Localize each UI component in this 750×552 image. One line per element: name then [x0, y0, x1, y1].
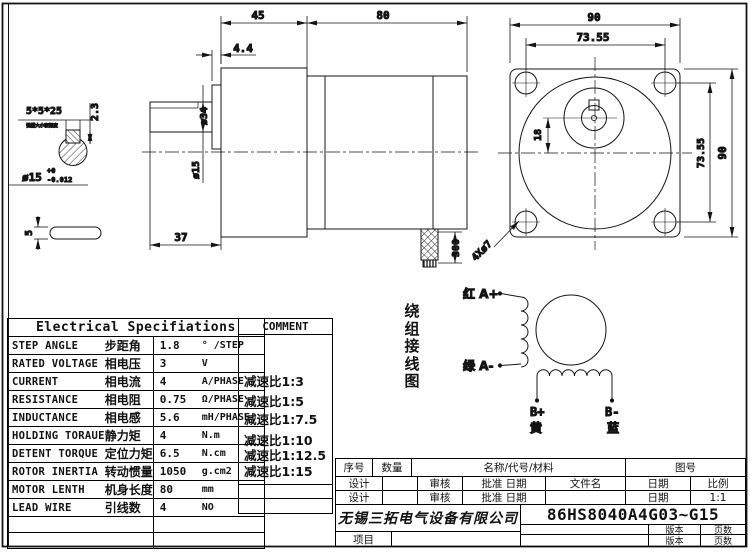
spec-table-title: Electrical Specifiations	[8, 319, 265, 337]
spec-row-inductance: INDUCTANCE 相电感 5.6 mH/PHASE	[8, 409, 265, 427]
tb-empty-cell	[392, 532, 521, 546]
spec-en: STEP ANGLE	[8, 337, 105, 355]
spec-value: 0.75	[153, 391, 198, 409]
dim-shaft-diameter: ø15	[191, 161, 202, 179]
dim-motor-length: 80	[376, 9, 389, 22]
tb-version-label: 版本	[649, 535, 701, 546]
spec-value: 1050	[153, 463, 198, 481]
spec-cn: 相电阻	[105, 391, 154, 409]
dim-shaft-offset: 18	[533, 129, 544, 141]
tb-name-code-material-label: 名称/代号/材料	[412, 459, 626, 477]
gear-ratio-item: 减速比1:15	[244, 461, 313, 480]
spec-cn: 机身长度	[105, 481, 154, 499]
shaft-tolerance-upper: +0	[47, 167, 55, 175]
spec-en: RATED VOLTAGE	[8, 355, 105, 373]
phase-b-coil	[537, 370, 612, 376]
dim-flange-width: 90	[587, 11, 600, 24]
spec-row-rated-voltage: RATED VOLTAGE 相电压 3 V	[8, 355, 265, 373]
spec-cn: 静力矩	[105, 427, 154, 445]
tb-company-name: 无锡三拓电气设备有限公司	[336, 505, 521, 532]
front-view: 90 73.55 73.55 90 18 4Xø7	[470, 11, 738, 264]
tb-scale-label: 比例	[691, 477, 745, 491]
dim-mounting-holes: 4Xø7	[470, 239, 495, 264]
tb-scale-value: 1:1	[691, 491, 745, 505]
key-height-label: 5	[24, 230, 35, 236]
spec-row-lead-wire: LEAD WIRE 引线数 4 NO	[8, 499, 265, 517]
cable	[421, 229, 438, 267]
shaft-tolerance-lower: -0.012	[47, 176, 72, 184]
bolt-holes	[512, 69, 679, 236]
spec-row-motor-length: MOTOR LENTH 机身长度 80 mm	[8, 481, 265, 499]
shaft-tolerance-base: ø15	[22, 171, 42, 184]
comment-column: COMMENT 减速比1:3 减速比1:5 减速比1:7.5 减速比1:10 减…	[238, 318, 333, 514]
spec-en: HOLDING TORAUE	[8, 427, 105, 445]
spec-value: 5.6	[153, 409, 198, 427]
side-view: 45 80 4.4 ø34 ø15 37 300	[142, 9, 478, 267]
spec-row-step-angle: STEP ANGLE 步距角 1.8 ° /STEP	[8, 337, 265, 355]
spec-cn: 引线数	[105, 499, 154, 517]
spec-cn: 相电感	[105, 409, 154, 427]
dim-shaft-length: 37	[174, 231, 187, 244]
spec-value: 4	[153, 373, 198, 391]
spec-en: LEAD WIRE	[8, 499, 105, 517]
dim-boss-thickness: 4.4	[233, 42, 253, 55]
spec-cn: 相电压	[105, 355, 154, 373]
phase-a-coil	[521, 297, 528, 367]
lead-b-plus-label: B+	[530, 405, 544, 419]
tb-seq-label: 序号	[336, 459, 373, 477]
gear-ratio-item: 减速比1:5	[244, 391, 304, 410]
shaft-section-detail: 5*5*25 键槽大小和深度 2.3 ø15 +0 -0.012	[8, 103, 101, 185]
tb-version-label: 版本	[649, 525, 701, 535]
spec-en: CURRENT	[8, 373, 105, 391]
tb-date-label: 日期	[626, 491, 691, 505]
tb-pages-label: 页数	[701, 535, 745, 546]
spec-empty-row	[8, 533, 265, 549]
wiring-diagram: 红 A+ 绿 A- B+ 黄 B- 蓝	[463, 286, 619, 435]
spec-row-holding-torque: HOLDING TORAUE 静力矩 4 N.m	[8, 427, 265, 445]
spec-row-current: CURRENT 相电流 4 A/PHASE	[8, 373, 265, 391]
tb-approve-date-label: 批准 日期	[463, 477, 546, 491]
tb-review-label: 审核	[418, 491, 463, 505]
keyway-note: 键槽大小和深度	[26, 122, 58, 129]
spec-value: 4	[153, 427, 198, 445]
spec-en: MOTOR LENTH	[8, 481, 105, 499]
dim-boss-diameter: ø34	[199, 107, 210, 125]
spec-cn: 定位力矩	[105, 445, 154, 463]
tb-empty-cell	[383, 491, 418, 505]
dim-hole-spacing-h: 73.55	[576, 31, 609, 44]
comment-header: COMMENT	[239, 319, 332, 335]
dim-hole-spacing-v: 73.55	[696, 138, 707, 168]
engineering-drawing-sheet: 45 80 4.4 ø34 ø15 37 300 5*5*25 键槽大小和深度 …	[0, 0, 750, 552]
spec-en: DETENT TORQUE	[8, 445, 105, 463]
keyway-spec-label: 5*5*25	[26, 106, 62, 117]
electrical-spec-table: Electrical Specifiations STEP ANGLE 步距角 …	[7, 318, 265, 549]
tb-drawing-no-label: 图号	[626, 459, 745, 477]
spec-row-resistance: RESISTANCE 相电阻 0.75 Ω/PHASE	[8, 391, 265, 409]
lead-a-plus-label: 红 A+	[463, 286, 499, 301]
spec-value: 3	[153, 355, 198, 373]
tb-design-label: 设计	[336, 491, 383, 505]
spec-value: 1.8	[153, 337, 198, 355]
tb-date-label: 日期	[626, 477, 691, 491]
title-block: 序号 数量 名称/代号/材料 图号 设计 审核 批准 日期 文件名 日期 比例 …	[335, 458, 746, 547]
dim-gearbox-length: 45	[251, 9, 264, 22]
tb-empty-cell	[383, 477, 418, 491]
lead-b-minus-color: 蓝	[607, 420, 619, 435]
spec-empty-row	[8, 517, 265, 533]
spec-value: 4	[153, 499, 198, 517]
spec-value: 6.5	[153, 445, 198, 463]
spec-en: ROTOR INERTIA	[8, 463, 105, 481]
spec-cn: 转动惯量	[105, 463, 154, 481]
lead-b-minus-label: B-	[605, 405, 619, 419]
dim-flange-height: 90	[716, 146, 729, 159]
spec-cn: 步距角	[105, 337, 154, 355]
tb-pages-label: 页数	[701, 525, 745, 535]
tb-empty-cell	[521, 535, 649, 546]
comment-grid-line	[239, 498, 332, 499]
tb-qty-label: 数量	[373, 459, 412, 477]
tb-file-name-label: 文件名	[546, 477, 626, 491]
tb-part-number: 86HS8040A4G03~G15	[521, 505, 745, 525]
spec-en: INDUCTANCE	[8, 409, 105, 427]
keyway-depth-label: 2.3	[90, 103, 101, 121]
comment-grid-line	[239, 484, 332, 485]
tb-approve-date-label: 批准 日期	[463, 491, 546, 505]
wiring-diagram-title: 绕组接线图	[403, 303, 421, 391]
spec-value: 80	[153, 481, 198, 499]
key-side-view: 5	[24, 216, 101, 250]
spec-row-rotor-inertia: ROTOR INERTIA 转动惯量 1050 g.cm2	[8, 463, 265, 481]
side-view-dimensions	[150, 16, 467, 263]
lead-a-minus-label: 绿 A-	[463, 358, 493, 373]
spec-en: RESISTANCE	[8, 391, 105, 409]
gear-ratio-item: 减速比1:3	[244, 371, 304, 390]
spec-row-detent-torque: DETENT TORQUE 定位力矩 6.5 N.cm	[8, 445, 265, 463]
spec-header-row: Electrical Specifiations	[8, 319, 265, 337]
tb-design-label: 设计	[336, 477, 383, 491]
lead-b-plus-color: 黄	[530, 420, 542, 435]
spec-cn: 相电流	[105, 373, 154, 391]
front-view-dimensions	[494, 18, 738, 247]
tb-empty-cell	[521, 525, 649, 535]
gear-ratio-item: 减速比1:7.5	[244, 409, 317, 428]
tb-empty-cell	[546, 491, 626, 505]
dim-cable-length: 300	[451, 239, 462, 257]
tb-project-label: 项目	[336, 532, 392, 546]
tb-review-label: 审核	[418, 477, 463, 491]
